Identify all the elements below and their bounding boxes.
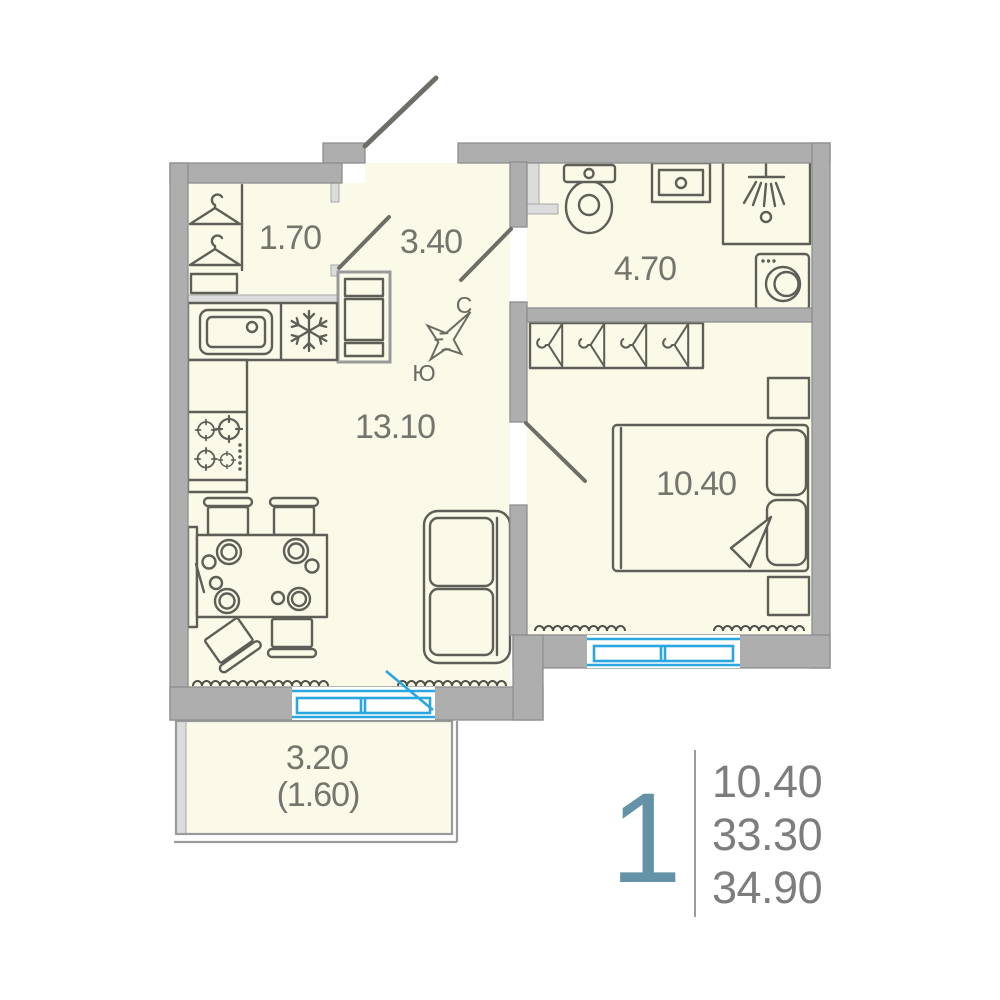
wall-bath-bedroom (527, 308, 812, 322)
wall-mid-c (510, 505, 527, 635)
washbasin-icon (652, 163, 710, 202)
wall-step-block (513, 635, 543, 720)
chair-back (270, 498, 318, 506)
chair-back (204, 498, 252, 506)
wall-top-left (170, 163, 342, 183)
label-kitchen-area: 13.10 (355, 408, 435, 446)
rooms-count: 1 (610, 767, 681, 910)
pillow-icon (767, 500, 806, 565)
bathroom-duct-h (527, 204, 558, 214)
chair-back (268, 649, 316, 657)
hallway-cabinet (338, 272, 390, 362)
wall-mid-b (510, 302, 527, 422)
wardrobe-door-stub (331, 183, 339, 202)
sofa-icon (424, 511, 510, 663)
kitchen-counter-top (188, 303, 337, 360)
shower-icon (723, 162, 810, 244)
chair-icon (272, 619, 312, 647)
toilet-icon (564, 165, 615, 233)
window-frame (297, 698, 430, 713)
entrance-door-leaf (365, 78, 436, 146)
wall-top-right (458, 143, 830, 163)
total-area-value: 34.90 (712, 862, 822, 913)
wall-left (170, 163, 188, 720)
floor-plan: С Ю 1.70 3.40 4.70 13.10 10.40 3.20 (1.6… (0, 0, 1000, 1000)
compass-south-label: Ю (412, 360, 435, 386)
nightstand-icon (768, 577, 809, 615)
apartment-area-value: 33.30 (712, 809, 822, 860)
label-balcony-area: 3.20 (286, 739, 348, 777)
wall-right (812, 143, 830, 668)
floor-plan-page: С Ю 1.70 3.40 4.70 13.10 10.40 3.20 (1.6… (0, 0, 1000, 1000)
wall-top-step (323, 143, 365, 163)
compass-north-label: С (456, 292, 473, 318)
pillow-icon (767, 430, 806, 495)
balcony-parapet (176, 721, 186, 834)
summary-block: 1 10.40 33.30 34.90 (610, 750, 822, 917)
sideboard (188, 527, 197, 627)
wall-mid-a (510, 162, 527, 227)
label-wardrobe-area: 1.70 (259, 219, 321, 257)
living-area-value: 10.40 (712, 756, 822, 807)
label-balcony-coefficient: (1.60) (277, 776, 360, 814)
label-bathroom-area: 4.70 (614, 250, 676, 288)
bedroom-window (587, 635, 740, 668)
chair-icon (208, 507, 248, 535)
washing-machine-icon (756, 254, 809, 310)
label-bedroom-area: 10.40 (656, 465, 736, 503)
nightstand-icon (768, 378, 809, 418)
label-hallway-area: 3.40 (400, 223, 462, 261)
window-frame (594, 646, 733, 661)
chair-icon (274, 507, 314, 535)
